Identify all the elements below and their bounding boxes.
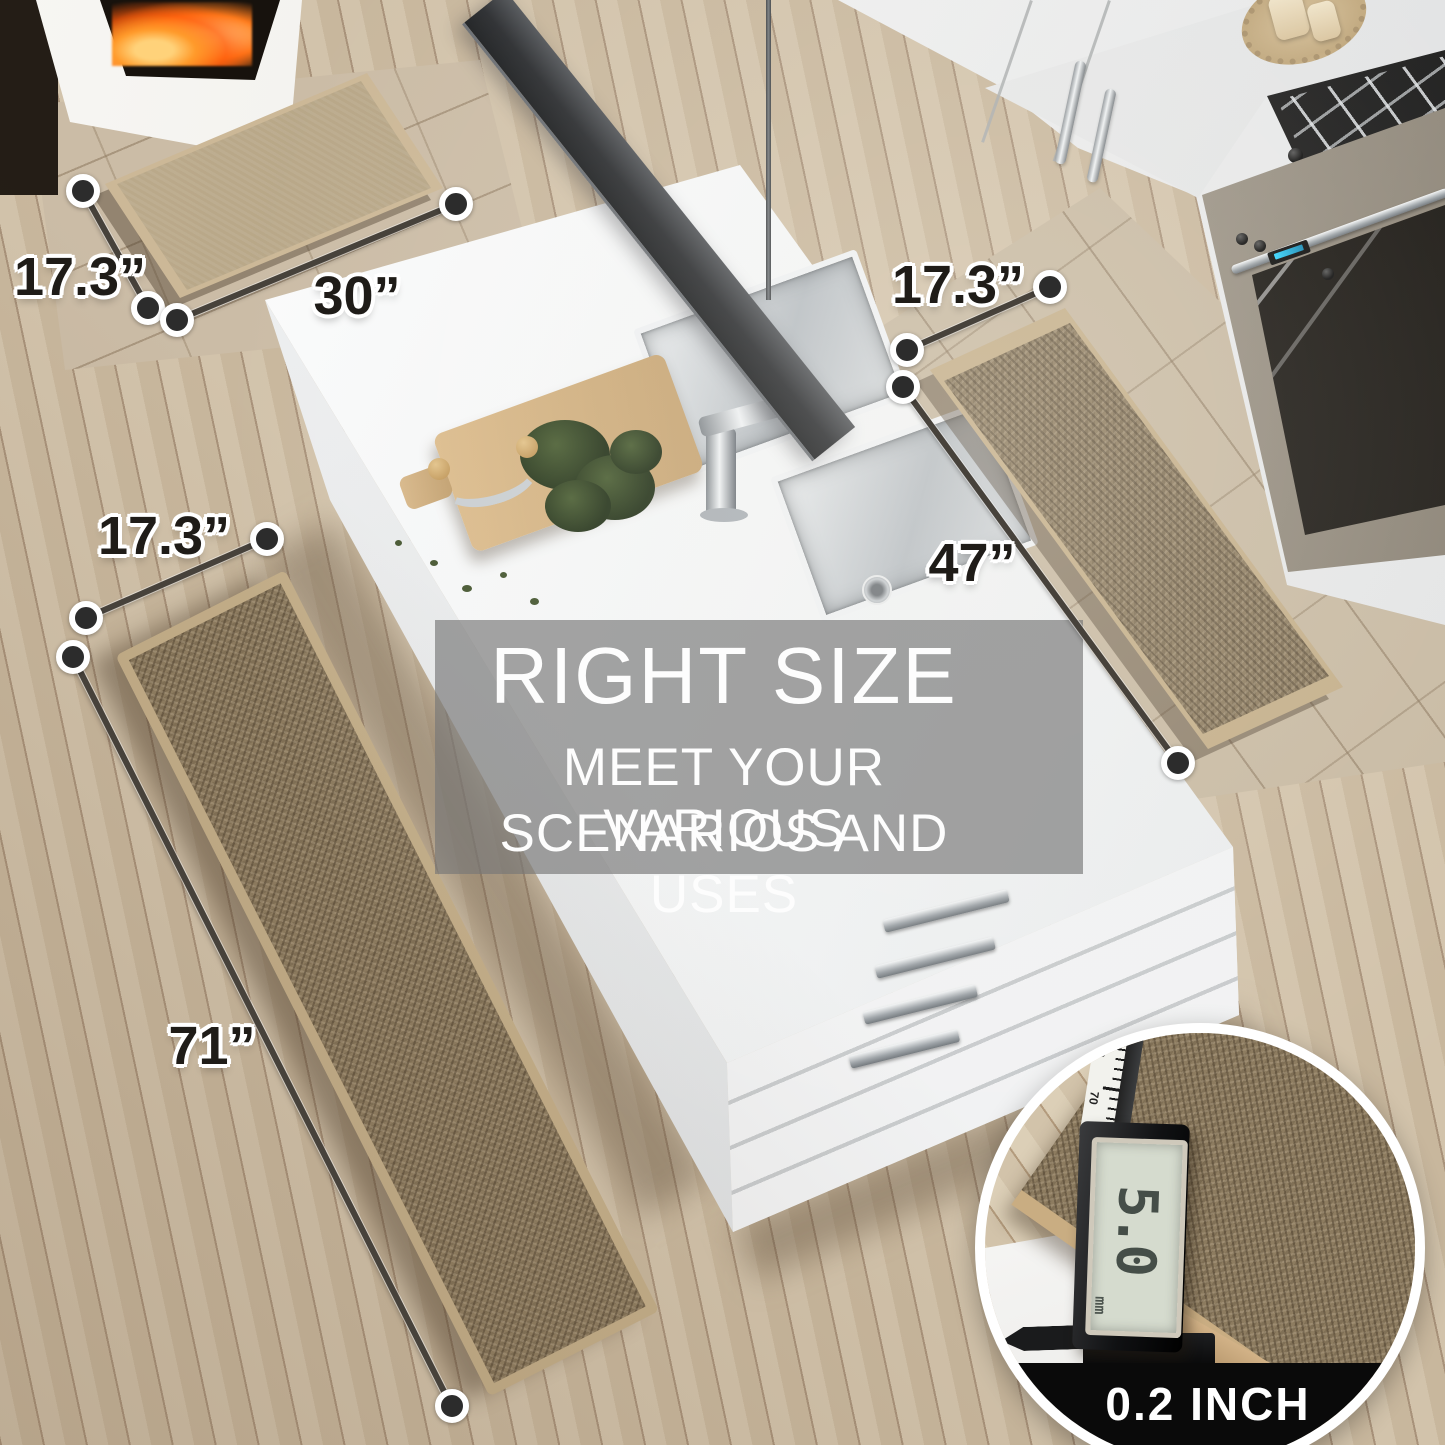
- banner-title: RIGHT SIZE: [435, 630, 1083, 722]
- endpoint-dot-icon: [69, 601, 103, 635]
- caliper-reading: 5.0: [1104, 1185, 1170, 1276]
- oven-knob: [1236, 233, 1248, 245]
- caliper-lcd: 5.0 mm: [1085, 1137, 1188, 1338]
- endpoint-dot-icon: [890, 333, 924, 367]
- faucet-post: [706, 428, 736, 520]
- endpoint-dot-icon: [886, 370, 920, 404]
- banner-subtitle-2: SCENARIOS AND USES: [435, 803, 1083, 925]
- endpoint-dot-icon: [439, 187, 473, 221]
- endpoint-dot-icon: [56, 640, 90, 674]
- dimension-label-right-runner-length: 47”: [928, 532, 1015, 594]
- pendant-rod: [766, 0, 771, 300]
- ruler-mark: 70: [1086, 1090, 1102, 1105]
- endpoint-dot-icon: [1161, 746, 1195, 780]
- dimension-label-top-mat-width: 30”: [313, 265, 400, 327]
- thickness-caption-band: 0.2 INCH: [975, 1363, 1425, 1445]
- herb-scrap: [462, 585, 472, 592]
- dimension-label-left-runner-depth: 17.3”: [98, 505, 230, 567]
- herb-scrap: [500, 572, 507, 578]
- thickness-inset-circle: 90 80 70 5.0 mm 0.2 INCH: [975, 1023, 1425, 1445]
- endpoint-dot-icon: [250, 522, 284, 556]
- thickness-caption: 0.2 INCH: [1105, 1377, 1310, 1431]
- mat-size-infographic: 17.3” 30” 17.3” 47” 17.3” 71” RIGHT SIZE…: [0, 0, 1445, 1445]
- faucet-base: [700, 508, 748, 522]
- endpoint-dot-icon: [160, 303, 194, 337]
- herbs-pile: [545, 480, 611, 532]
- endpoint-dot-icon: [435, 1389, 469, 1423]
- endpoint-dot-icon: [1033, 270, 1067, 304]
- herb-scrap: [530, 598, 539, 605]
- oven-knob: [1254, 240, 1266, 252]
- herb-scrap: [395, 540, 402, 546]
- knife-handle: [516, 436, 538, 458]
- dimension-label-left-runner-length: 71”: [168, 1015, 255, 1077]
- endpoint-dot-icon: [66, 174, 100, 208]
- herb-scrap: [430, 560, 438, 566]
- dimension-label-right-runner-depth: 17.3”: [892, 254, 1024, 316]
- ruler-mark: 80: [1093, 1043, 1109, 1058]
- dimension-label-top-mat-depth: 17.3”: [14, 246, 146, 308]
- oven-knob: [1322, 268, 1334, 280]
- sink-drain-icon: [862, 575, 892, 605]
- fire-flames: [112, 2, 252, 66]
- knife-handle: [428, 458, 450, 480]
- herbs-pile: [610, 430, 662, 474]
- caliper-unit: mm: [1091, 1296, 1110, 1315]
